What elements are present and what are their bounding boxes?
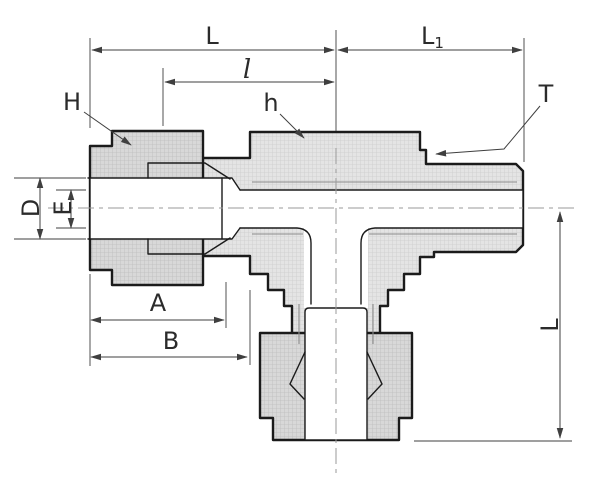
label-L1-base: L — [421, 22, 435, 50]
label-D: D — [17, 199, 45, 217]
label-A: A — [150, 289, 167, 317]
label-l-partial: l — [243, 55, 251, 85]
label-L1: L1 — [421, 22, 444, 52]
label-L-run: L — [205, 22, 219, 50]
technical-drawing-page: L L1 l H h T D E A B L — [0, 0, 603, 485]
label-H: H — [63, 88, 81, 116]
label-B: B — [163, 327, 179, 355]
label-L-drop: L — [536, 318, 564, 332]
run-bore — [240, 190, 523, 228]
label-L1-subscript: 1 — [434, 34, 444, 52]
label-h: h — [263, 89, 278, 117]
leader-H — [84, 112, 131, 145]
label-E: E — [49, 200, 77, 215]
label-T: T — [538, 80, 554, 108]
tee-fitting-section-diagram: L L1 l H h T D E A B L — [0, 0, 603, 485]
part-geometry — [88, 131, 523, 440]
